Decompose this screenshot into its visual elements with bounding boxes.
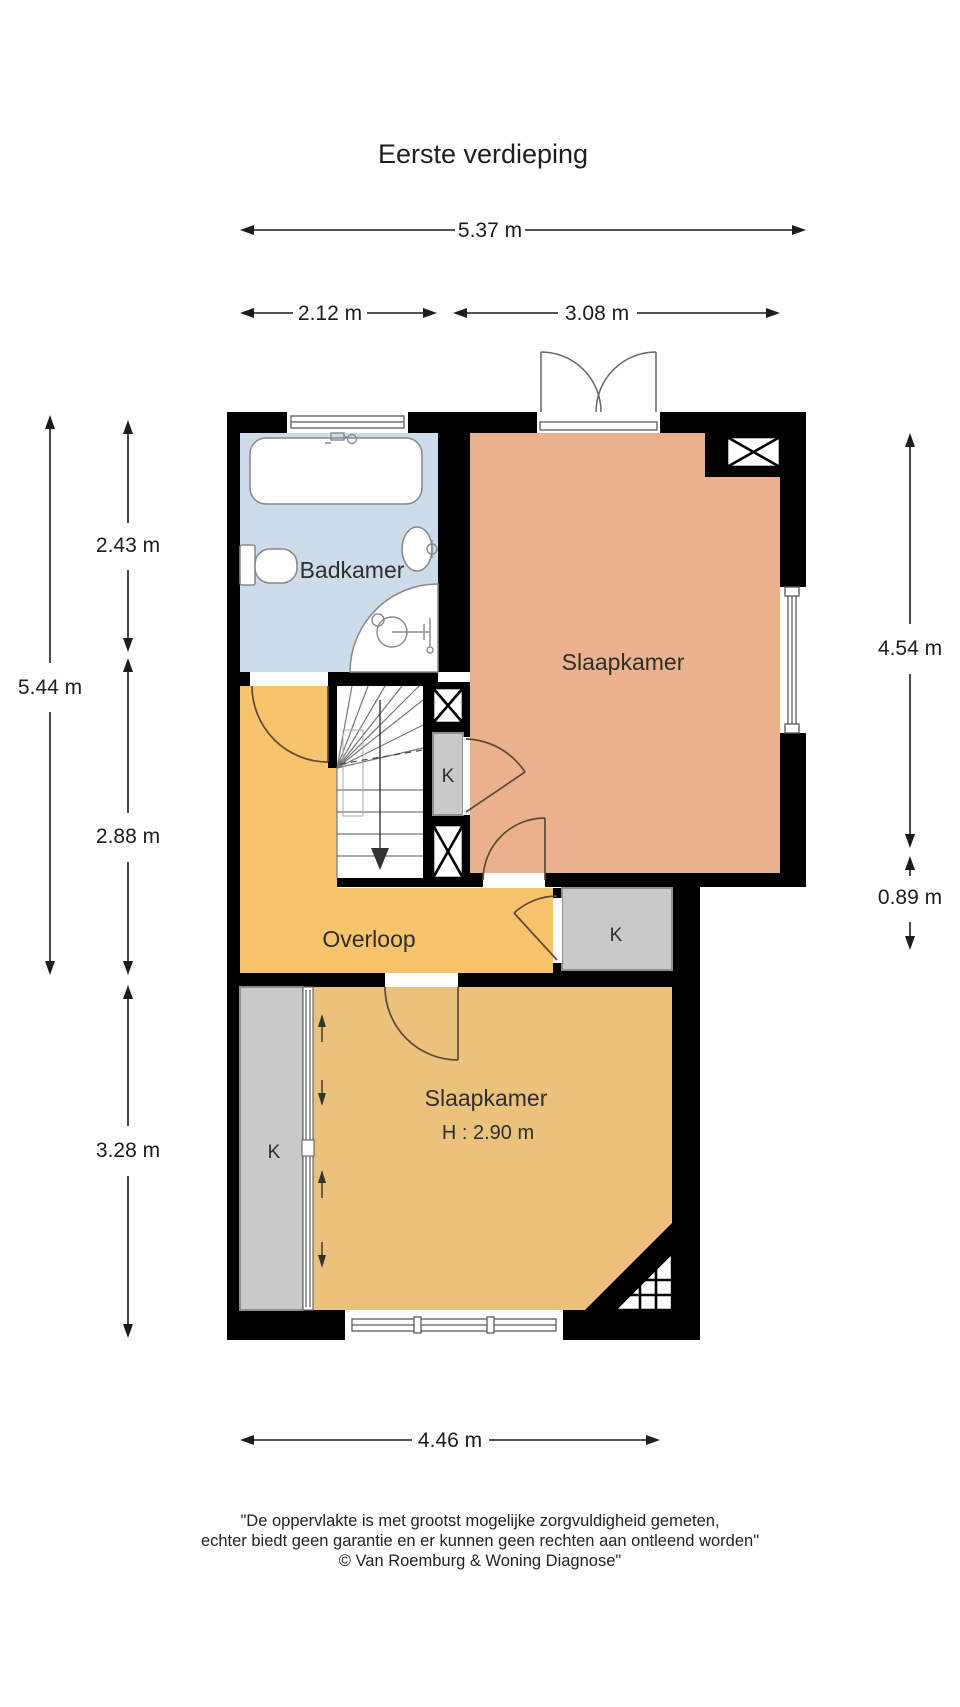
wall-overloop-bottom-left (240, 973, 385, 987)
dim-left-upper: 2.43 m (96, 420, 160, 652)
wall-left (227, 433, 240, 1340)
label-slaapkamer-boven: Slaapkamer (562, 649, 685, 675)
closet-sliding-door (302, 987, 314, 1310)
svg-text:4.54 m: 4.54 m (878, 637, 942, 660)
dim-top-total: 5.37 m (240, 219, 806, 242)
toilet (240, 545, 297, 585)
wall-badkamer-right (438, 433, 470, 672)
dim-top-left: 2.12 m (240, 302, 437, 325)
wall-stairs-bottom (337, 878, 423, 887)
wall-badkamer-stairs (328, 672, 438, 686)
label-overloop: Overloop (322, 926, 415, 952)
wall-slaapkamer-bottom-stub (470, 873, 483, 887)
window-bottom (345, 1310, 563, 1340)
footer-line-2: echter biedt geen garantie en er kunnen … (201, 1532, 759, 1550)
wall-top-left (227, 412, 287, 433)
slaapkamer-onder-floor (313, 987, 672, 1310)
wall-slaapkamer-bottom (545, 873, 806, 887)
wall-top-mid (408, 412, 537, 433)
dim-left-lower: 3.28 m (96, 985, 160, 1338)
wall-kast-mid-stub-bottom (553, 963, 562, 970)
dim-left-middle: 2.88 m (96, 658, 160, 975)
dim-top-right: 3.08 m (453, 302, 780, 325)
svg-text:0.89 m: 0.89 m (878, 886, 942, 909)
label-badkamer: Badkamer (300, 557, 405, 583)
svg-text:2.12 m: 2.12 m (298, 302, 362, 325)
footer-line-3: © Van Roemburg & Woning Diagnose" (339, 1552, 622, 1570)
wall-overloop-bottom-right (458, 973, 553, 987)
shaft-xbox-top (433, 688, 463, 723)
svg-text:2.43 m: 2.43 m (96, 534, 160, 557)
svg-text:3.28 m: 3.28 m (96, 1139, 160, 1162)
floorplan-eerste-verdieping: Badkamer Slaapkamer Overloop Slaapkamer … (0, 0, 960, 1707)
svg-text:2.88 m: 2.88 m (96, 825, 160, 848)
wall-right-upper (780, 433, 806, 587)
svg-text:5.37 m: 5.37 m (458, 219, 522, 242)
dim-left-total: 5.44 m (18, 415, 82, 975)
wall-top-right (660, 412, 705, 433)
label-hoogte: H : 2.90 m (442, 1122, 534, 1144)
dim-right-lower: 0.89 m (878, 856, 942, 950)
svg-text:4.46 m: 4.46 m (418, 1429, 482, 1452)
label-k-mid: K (610, 925, 623, 946)
label-k-left: K (268, 1142, 281, 1163)
shaft-xbox-corner (727, 437, 780, 467)
bathtub (250, 433, 422, 504)
dim-right-upper: 4.54 m (878, 433, 942, 848)
french-doors-top (537, 352, 660, 433)
shaft-xbox-bottom (433, 825, 463, 878)
label-k-shaft: K (442, 766, 455, 787)
wall-right-lower (780, 733, 806, 887)
wall-bottom-left (227, 1310, 345, 1340)
footer-line-1: "De oppervlakte is met grootst mogelijke… (240, 1512, 719, 1530)
footer-disclaimer: "De oppervlakte is met grootst mogelijke… (201, 1512, 759, 1570)
svg-text:3.08 m: 3.08 m (565, 302, 629, 325)
window-top (287, 412, 408, 433)
label-slaapkamer-onder: Slaapkamer (425, 1085, 548, 1111)
page-title: Eerste verdieping (378, 139, 588, 169)
wall-badkamer-bottom-stub (240, 672, 250, 686)
svg-text:5.44 m: 5.44 m (18, 676, 82, 699)
dim-bottom: 4.46 m (240, 1429, 660, 1452)
wall-stairs-left-stub (328, 686, 337, 768)
window-right (780, 587, 806, 733)
